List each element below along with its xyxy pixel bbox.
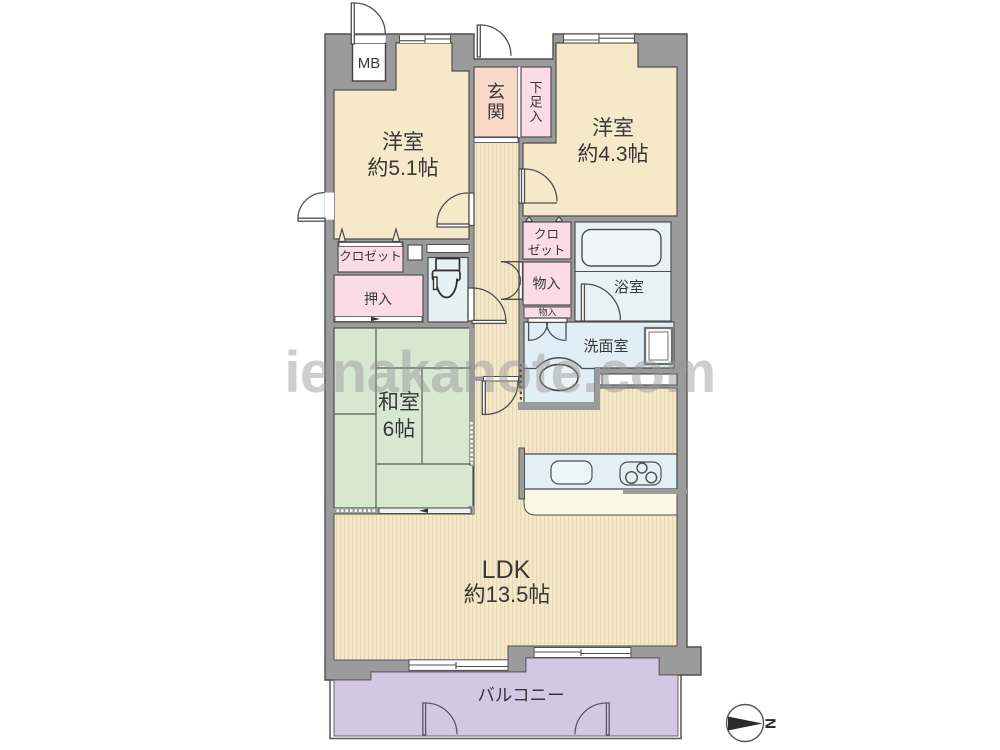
svg-text:約13.5帖: 約13.5帖 — [464, 582, 551, 607]
svg-text:MB: MB — [358, 55, 381, 72]
svg-text:バルコニー: バルコニー — [477, 685, 564, 705]
svg-text:N: N — [762, 718, 779, 729]
svg-text:ienakanote.com: ienakanote.com — [284, 340, 715, 405]
svg-text:洋室: 洋室 — [592, 117, 634, 140]
svg-text:玄: 玄 — [487, 82, 505, 102]
svg-text:ゼット: ゼット — [528, 244, 566, 258]
svg-text:足: 足 — [529, 95, 542, 110]
svg-text:押入: 押入 — [364, 291, 392, 307]
svg-text:クロ: クロ — [534, 228, 559, 242]
svg-text:洋室: 洋室 — [382, 131, 424, 154]
svg-text:6帖: 6帖 — [383, 418, 416, 441]
svg-text:和室: 和室 — [378, 391, 420, 414]
svg-text:物入: 物入 — [538, 307, 556, 318]
svg-text:クロゼット: クロゼット — [339, 250, 402, 264]
svg-text:LDK: LDK — [482, 556, 531, 584]
svg-text:浴室: 浴室 — [614, 279, 644, 296]
svg-text:物入: 物入 — [533, 276, 561, 292]
svg-text:約4.3帖: 約4.3帖 — [577, 143, 648, 166]
svg-text:関: 関 — [487, 102, 505, 122]
svg-text:洗面室: 洗面室 — [583, 338, 628, 355]
svg-text:下: 下 — [529, 80, 542, 95]
svg-text:約5.1帖: 約5.1帖 — [367, 157, 438, 180]
svg-text:入: 入 — [529, 109, 542, 124]
